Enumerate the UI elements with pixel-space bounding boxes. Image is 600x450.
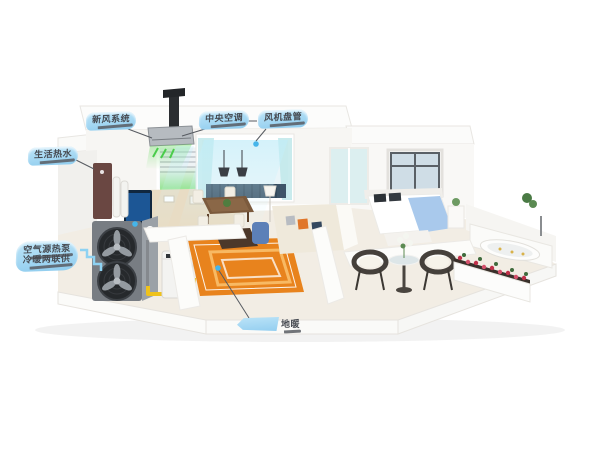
house-illustration bbox=[0, 0, 600, 450]
heat-pump-fan-bottom bbox=[98, 262, 136, 300]
callout-fresh-air-label: 新风系统 bbox=[92, 113, 130, 124]
callout-floor-heating: 地暖 bbox=[237, 317, 300, 331]
callout-heat-pump: 空气源热泵 冷暖两联供 bbox=[15, 240, 78, 272]
accent-chair bbox=[252, 222, 269, 244]
callout-fan-coil-label: 风机盘管 bbox=[264, 111, 302, 122]
callout-floor-heating-banner-icon bbox=[237, 317, 279, 331]
callout-fan-coil: 风机盘管 bbox=[258, 109, 309, 129]
heat-pump-fan-top bbox=[98, 228, 136, 266]
floor-lamp bbox=[264, 186, 276, 196]
callout-fresh-air: 新风系统 bbox=[86, 111, 137, 131]
callout-floor-heating-label: 地暖 bbox=[281, 319, 300, 329]
sofa bbox=[272, 204, 344, 254]
callout-central-ac-label: 中央空调 bbox=[205, 112, 243, 123]
callout-hot-water-label: 生活热水 bbox=[34, 148, 72, 159]
cabinet-logo-icon bbox=[100, 170, 104, 174]
nightstand bbox=[448, 206, 464, 228]
callout-hot-water: 生活热水 bbox=[28, 146, 79, 166]
page: 新风系统 中央空调 风机盘管 生活热水 空气源热泵 冷暖两联供 地暖 bbox=[0, 0, 600, 450]
callout-heat-pump-sublabel: 冷暖两联供 bbox=[23, 253, 71, 265]
callout-central-ac: 中央空调 bbox=[199, 110, 250, 130]
